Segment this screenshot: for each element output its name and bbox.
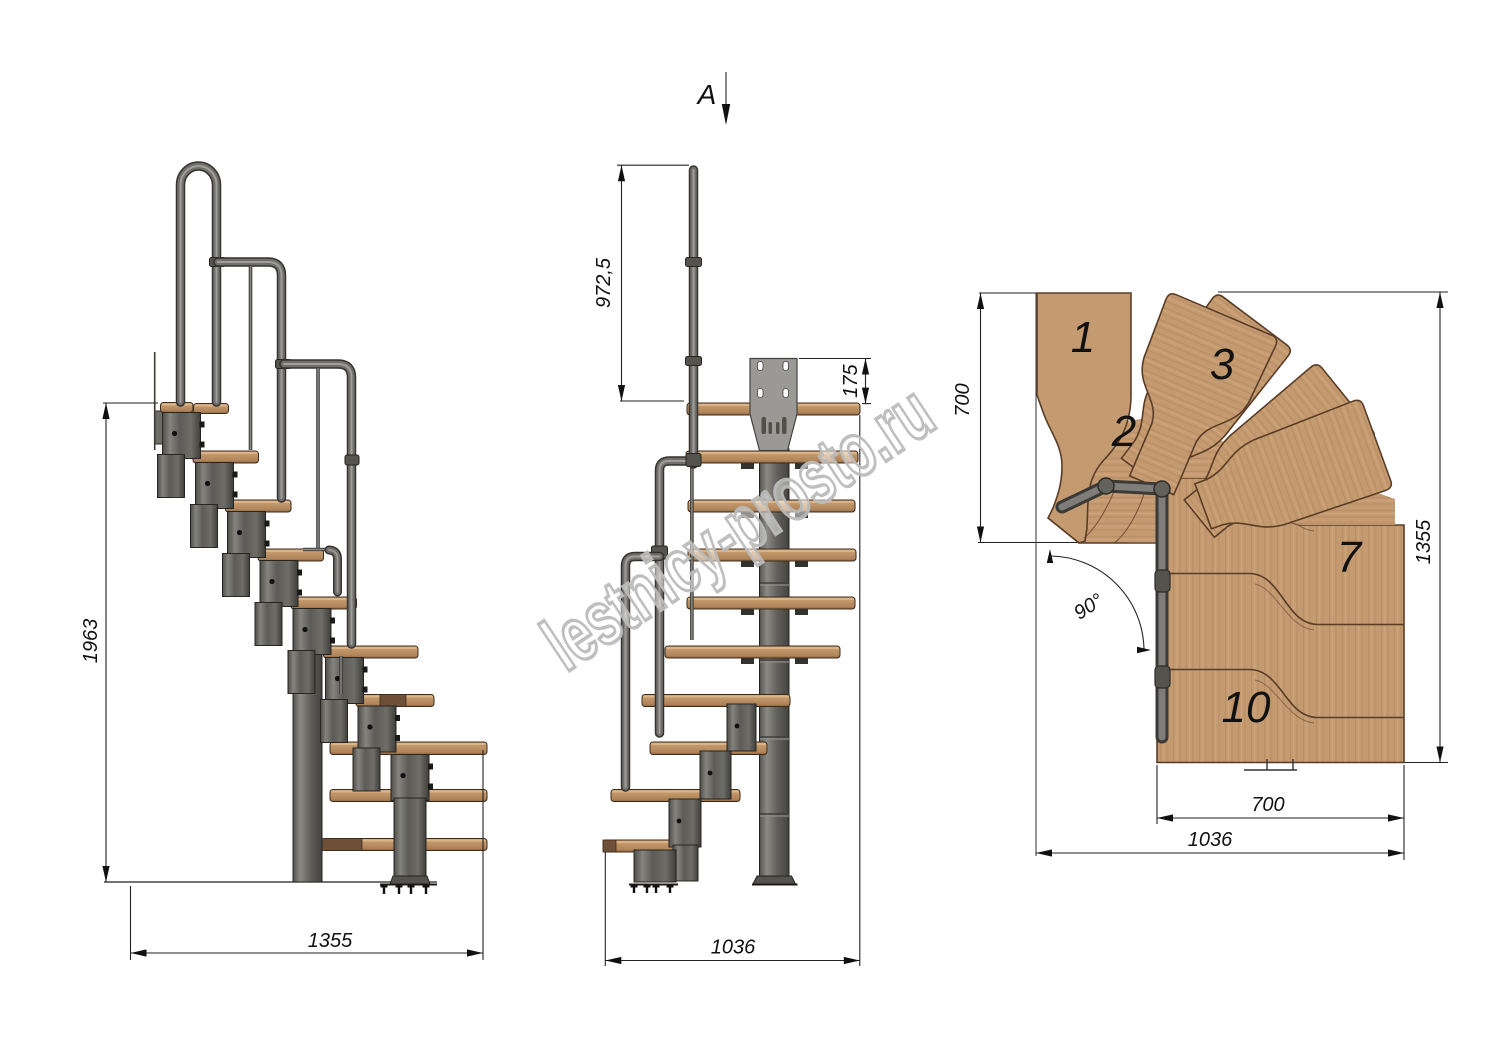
svg-text:175: 175	[840, 363, 862, 397]
svg-text:700: 700	[952, 383, 974, 416]
svg-text:7: 7	[1337, 533, 1363, 582]
svg-text:1355: 1355	[308, 930, 353, 952]
svg-text:10: 10	[1222, 683, 1271, 732]
svg-text:1036: 1036	[1188, 829, 1233, 851]
svg-text:700: 700	[1251, 794, 1284, 816]
svg-text:1: 1	[1071, 313, 1095, 362]
svg-text:A: A	[696, 79, 717, 110]
svg-text:1036: 1036	[711, 937, 756, 959]
svg-text:3: 3	[1210, 340, 1235, 389]
svg-text:2: 2	[1111, 407, 1136, 456]
svg-text:972,5: 972,5	[593, 257, 615, 308]
svg-text:1963: 1963	[80, 619, 102, 664]
svg-text:1355: 1355	[1413, 519, 1435, 564]
